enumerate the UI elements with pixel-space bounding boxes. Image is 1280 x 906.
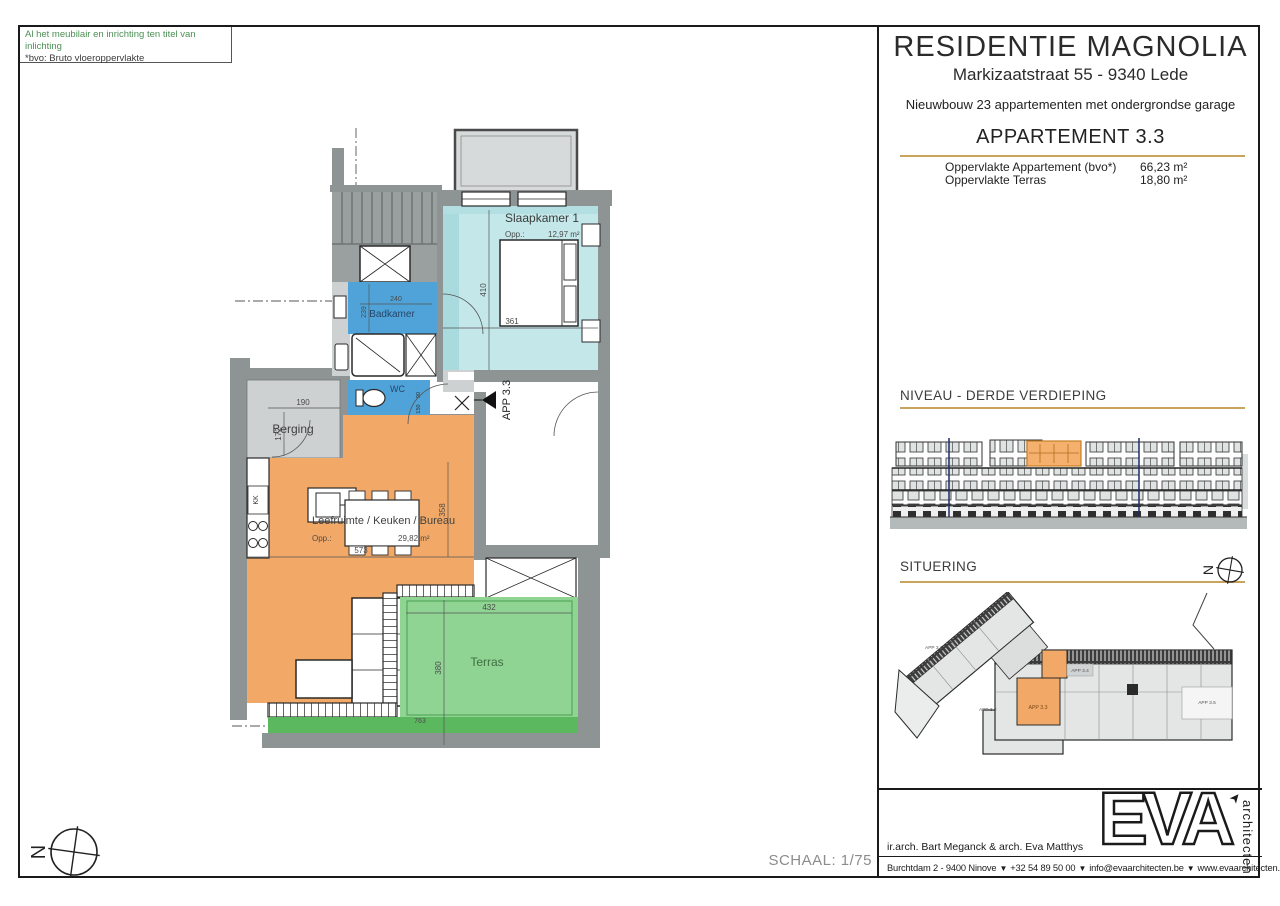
contact-email: info@evaarchitecten.be	[1089, 863, 1184, 873]
room-berging: Berging	[247, 380, 340, 458]
floor-plan: Badkamer Hal WC 90 150	[0, 0, 880, 906]
app-marker-label: APP 3.3	[501, 380, 513, 420]
room-label-badkamer: Badkamer	[369, 309, 415, 320]
section-situering-heading: SITUERING	[900, 559, 977, 574]
room-opp-label-leefruimte: Opp.:	[312, 534, 332, 543]
elevation-drawing	[890, 432, 1250, 534]
architect-block: EVA ➤ architecten ir.arch. Bart Meganck …	[879, 788, 1262, 878]
room-label-wc: WC	[390, 384, 405, 394]
dim-terras-total: 763	[414, 718, 426, 725]
site-plan: APP 3.1 APP 3.2 APP 3.3 APP 3.4 APP 3.5	[887, 592, 1257, 792]
north-letter: N	[1200, 565, 1216, 575]
area-value: 66,23 m²	[1140, 160, 1245, 174]
dim-bad-w: 240	[390, 296, 402, 303]
architect-names: ir.arch. Bart Meganck & arch. Eva Matthy…	[887, 841, 1083, 853]
site-north-compass: N	[1194, 553, 1250, 587]
bathroom-fixtures	[332, 334, 436, 376]
dim-bedroom-h: 410	[479, 283, 488, 297]
site-label-app34: APP 3.4	[1071, 668, 1089, 674]
gold-divider	[900, 155, 1245, 157]
project-title: RESIDENTIE MAGNOLIA	[879, 31, 1262, 64]
site-label-app35: APP 3.5	[1198, 700, 1216, 706]
dim-bedroom-w: 361	[505, 317, 519, 326]
section-niveau-heading: NIVEAU - DERDE VERDIEPING	[900, 388, 1107, 403]
balcony	[455, 130, 577, 192]
footer-divider	[879, 856, 1262, 857]
apartment-title: APPARTEMENT 3.3	[879, 126, 1262, 149]
area-label: Oppervlakte Terras	[900, 173, 1140, 187]
room-slaapkamer: Slaapkamer 1 Opp.: 12,97 m²	[443, 192, 600, 370]
dim-wc-2: 150	[416, 404, 422, 413]
north-compass: N	[22, 814, 122, 890]
apartment-highlight	[1027, 441, 1081, 466]
site-label-app31: APP 3.1	[925, 645, 943, 651]
contact-line: Burchtdam 2 - 9400 Ninove▼+32 54 89 50 0…	[887, 863, 1280, 873]
contact-website: www.evaarchitecten.be	[1198, 863, 1280, 873]
room-opp-slaapkamer: 12,97 m²	[548, 230, 580, 239]
contact-address: Burchtdam 2 - 9400 Ninove	[887, 863, 996, 873]
contact-phone: +32 54 89 50 00	[1010, 863, 1075, 873]
project-subtitle: Nieuwbouw 23 appartementen met ondergron…	[879, 97, 1262, 112]
scale-label: SCHAAL: 1/75	[700, 852, 872, 869]
dim-berging-w: 190	[296, 398, 310, 407]
room-label-leefruimte: Leefruimte / Keuken / Bureau	[312, 515, 455, 527]
north-letter: N	[28, 845, 50, 859]
room-label-terras: Terras	[470, 655, 503, 669]
dim-wc-1: 90	[416, 392, 422, 398]
dim-berging-h: 172	[274, 427, 283, 441]
flag-icon: ▼	[1184, 864, 1198, 873]
eva-logo: EVA	[1098, 782, 1230, 856]
flag-icon: ▼	[996, 864, 1010, 873]
room-opp-leefruimte: 29,82 m²	[398, 534, 430, 543]
elevator	[360, 246, 410, 282]
kitchen-kk-label: KK	[253, 495, 260, 505]
drawing-sheet: Al het meubilair en inrichting ten titel…	[0, 0, 1280, 906]
dim-bad-h: 239	[361, 306, 368, 318]
area-row-terras: Oppervlakte Terras 18,80 m²	[900, 173, 1245, 187]
area-value: 18,80 m²	[1140, 173, 1245, 187]
room-badkamer: Badkamer	[332, 282, 437, 334]
site-label-app32: APP 3.2	[979, 707, 997, 713]
area-label: Oppervlakte Appartement (bvo*)	[900, 160, 1140, 174]
room-opp-label-slaapkamer: Opp.:	[505, 230, 525, 239]
dim-terras-w: 432	[482, 603, 496, 612]
gold-divider	[900, 407, 1245, 409]
site-label-app33: APP 3.3	[1029, 705, 1048, 711]
room-label-slaapkamer: Slaapkamer 1	[505, 211, 579, 225]
dim-terras-h: 380	[434, 661, 443, 675]
title-panel: RESIDENTIE MAGNOLIA Markizaatstraat 55 -…	[877, 25, 1262, 878]
dim-living-h: 358	[438, 503, 447, 517]
dim-living-w: 573	[354, 546, 368, 555]
project-address: Markizaatstraat 55 - 9340 Lede	[879, 65, 1262, 85]
flag-icon: ▼	[1075, 864, 1089, 873]
area-row-apartment: Oppervlakte Appartement (bvo*) 66,23 m²	[900, 160, 1245, 174]
